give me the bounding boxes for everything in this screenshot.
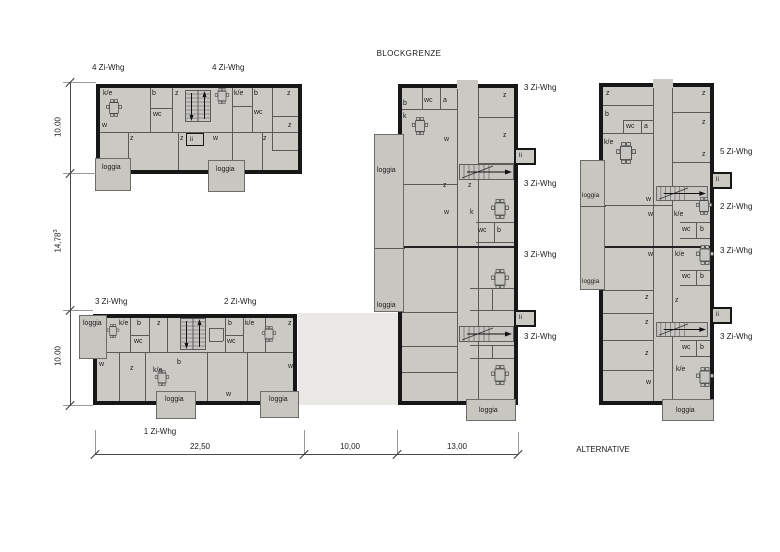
dining-table-icon: [260, 326, 278, 342]
room-label: b: [403, 100, 407, 107]
interior-wall: [402, 346, 457, 347]
apartment-type-label: 3 Zi-Whg: [524, 180, 556, 188]
loggia-label: loggia: [377, 167, 396, 174]
interior-wall: [672, 87, 673, 401]
room-label: w: [646, 196, 651, 203]
stairs-icon: [459, 326, 514, 342]
apartment-type-label: 3 Zi-Whg: [95, 298, 127, 306]
interior-wall: [402, 372, 457, 373]
loggia-label: loggia: [165, 396, 184, 403]
interior-wall: [178, 132, 179, 170]
dining-table-icon: [491, 365, 509, 385]
room-label: z: [288, 122, 292, 129]
interior-wall: [494, 222, 495, 242]
apartment-type-label: 2 Zi-Whg: [720, 203, 752, 211]
interior-wall: [680, 285, 710, 286]
room-label: z: [503, 92, 507, 99]
interior-wall: [402, 109, 457, 110]
interior-wall: [623, 120, 653, 121]
room-label: z: [130, 135, 134, 142]
party-wall: [402, 246, 514, 248]
room-label: z: [468, 182, 472, 189]
room-label: k/e: [674, 211, 683, 218]
room-label: z: [443, 182, 447, 189]
block-boundary-label: BLOCKGRENZE: [366, 50, 452, 58]
room-label: w: [288, 363, 293, 370]
room-label: wc: [682, 226, 691, 233]
room-label: k/e: [675, 251, 684, 258]
interior-wall: [603, 340, 653, 341]
interior-wall: [680, 356, 710, 357]
interior-wall: [696, 270, 697, 285]
dining-table-icon: [616, 142, 636, 164]
interior-wall: [492, 345, 493, 358]
loggia: loggia: [79, 315, 107, 359]
room-label: w: [648, 251, 653, 258]
apartment-type-label: 5 Zi-Whg: [720, 148, 752, 156]
dining-table-icon: [696, 245, 714, 265]
interior-wall: [422, 88, 423, 109]
interior-wall: [150, 88, 151, 132]
loggia: loggia: [260, 391, 299, 418]
dimension-label: 13,00: [432, 443, 482, 451]
room-label: wc: [424, 97, 433, 104]
interior-wall: [97, 352, 293, 353]
room-label: k/e: [103, 90, 112, 97]
dimension-label: 22,50: [175, 443, 225, 451]
interior-wall: [603, 290, 653, 291]
room-label: z: [175, 90, 179, 97]
loggia-label: loggia: [216, 166, 235, 173]
loggia-label: loggia: [102, 164, 121, 171]
room-label: b: [152, 90, 156, 97]
apartment-type-label: 4 Zi-Whg: [212, 64, 244, 72]
interior-wall: [119, 352, 120, 401]
interior-wall: [150, 108, 172, 109]
interior-wall: [440, 88, 441, 109]
room-label: z: [702, 119, 706, 126]
room-label: wc: [682, 344, 691, 351]
interior-wall: [476, 242, 514, 243]
dining-table-icon: [106, 98, 122, 118]
loggia-label: loggia: [269, 396, 288, 403]
room-label: k/e: [119, 320, 128, 327]
extension-line: [95, 430, 96, 454]
room-label: a: [443, 97, 447, 104]
wall-opening: [457, 80, 478, 89]
dimension-line: [70, 82, 71, 405]
interior-wall: [672, 112, 710, 113]
room-label: w: [444, 136, 449, 143]
room-label: z: [702, 90, 706, 97]
stairs-icon: [185, 90, 211, 122]
apartment-type-label: 3 Zi-Whg: [720, 333, 752, 341]
room-label: w: [102, 122, 107, 129]
room-label: z: [180, 135, 184, 142]
interior-wall: [247, 352, 248, 401]
dimension-label: 10,00: [325, 443, 375, 451]
dining-table-icon: [695, 197, 713, 215]
room-label: z: [263, 135, 267, 142]
loggia-label: loggia: [582, 279, 599, 286]
interior-wall: [243, 318, 244, 352]
party-wall: [603, 246, 710, 248]
interior-wall: [252, 88, 253, 132]
interior-wall: [470, 358, 514, 359]
room-label: k: [470, 209, 474, 216]
interior-wall: [272, 116, 298, 117]
room-label: z: [675, 297, 679, 304]
interior-wall: [603, 370, 653, 371]
extension-line: [397, 430, 398, 454]
apartment-type-label: 1 Zi-Whg: [130, 428, 190, 436]
interior-wall: [492, 288, 493, 310]
elevator-shaft: li: [711, 307, 732, 324]
room-label: z: [702, 151, 706, 158]
stairs-icon: [656, 322, 708, 337]
room-label: b: [254, 90, 258, 97]
building-middle-block: b wc a k z z w z z w k wc b: [398, 84, 518, 405]
room-label: b: [137, 320, 141, 327]
interior-wall: [272, 88, 273, 150]
loggia: loggia: [95, 158, 131, 191]
room-label: z: [130, 365, 134, 372]
loggia-divider: [375, 248, 405, 249]
apartment-type-label: 2 Zi-Whg: [224, 298, 256, 306]
building-alternative-block: z b wc a k/e z z z w w k/e wc b w k/e wc…: [599, 83, 714, 405]
interior-wall: [457, 88, 458, 401]
loggia: loggia: [466, 399, 516, 421]
room-label: b: [497, 227, 501, 234]
interior-wall: [232, 88, 233, 132]
stairs-icon: [180, 318, 206, 350]
loggia-label: loggia: [479, 407, 498, 414]
room-label: k/e: [604, 139, 613, 146]
interior-wall: [680, 270, 710, 271]
loggia-label: loggia: [83, 320, 102, 327]
room-label: z: [645, 294, 649, 301]
interior-wall: [223, 328, 224, 341]
dimension-label: 14,783: [54, 226, 64, 256]
elevator-shaft: li: [514, 310, 536, 327]
loggia-divider: [581, 206, 606, 207]
apartment-type-label: 4 Zi-Whg: [92, 64, 124, 72]
dining-table-icon: [695, 367, 715, 387]
courtyard-passage: [298, 313, 398, 405]
dining-table-icon: [491, 199, 509, 219]
elevator-shaft: li: [711, 172, 732, 189]
interior-wall: [149, 318, 150, 352]
room-label: wc: [254, 109, 263, 116]
loggia-label: loggia: [676, 407, 695, 414]
interior-wall: [225, 335, 243, 336]
apartment-type-label: 3 Zi-Whg: [524, 251, 556, 259]
alternative-label: ALTERNATIVE: [562, 446, 644, 454]
loggia: loggia loggia: [580, 160, 605, 290]
room-label: wc: [478, 227, 487, 234]
extension-line: [304, 430, 305, 454]
room-label: w: [99, 361, 104, 368]
dimension-label: 10.00: [54, 341, 64, 371]
room-label: wc: [626, 123, 635, 130]
interior-wall: [672, 162, 710, 163]
room-label: k/e: [153, 367, 162, 374]
interior-wall: [167, 318, 168, 352]
dining-table-icon: [491, 269, 509, 289]
room-label: z: [503, 132, 507, 139]
elevator-shaft: li: [514, 148, 536, 165]
room-label: b: [700, 226, 704, 233]
extension-line: [518, 432, 519, 454]
interior-wall: [696, 340, 697, 356]
room-label: z: [606, 90, 610, 97]
room-label: z: [645, 319, 649, 326]
room-label: k: [403, 113, 407, 120]
room-label: w: [444, 209, 449, 216]
room-label: wc: [153, 111, 162, 118]
room-label: b: [177, 359, 181, 366]
stairs-icon: [459, 164, 514, 180]
apartment-type-label: 3 Zi-Whg: [720, 247, 752, 255]
interior-wall: [172, 88, 173, 132]
interior-wall: [680, 340, 710, 341]
interior-wall: [145, 352, 146, 401]
dimension-line: [95, 454, 518, 455]
room-label: z: [157, 320, 161, 327]
interior-wall: [696, 222, 697, 238]
room-label: k/e: [245, 320, 254, 327]
interior-wall: [623, 120, 624, 133]
interior-wall: [603, 313, 653, 314]
interior-wall: [603, 105, 653, 106]
interior-wall: [272, 150, 298, 151]
interior-wall: [476, 222, 514, 223]
interior-wall: [232, 106, 252, 107]
interior-wall: [603, 133, 653, 134]
loggia-label: loggia: [582, 193, 599, 200]
room-label: b: [700, 344, 704, 351]
interior-wall: [641, 120, 642, 133]
room-label: wc: [134, 338, 143, 345]
room-label: z: [645, 350, 649, 357]
floor-plan-canvas: 4 Zi-Whg 4 Zi-Whg li k/e b z wc w z z w …: [0, 0, 780, 552]
room-label: w: [646, 379, 651, 386]
room-label: a: [644, 123, 648, 130]
loggia: loggia: [156, 391, 196, 419]
room-label: z: [288, 320, 292, 327]
dining-table-icon: [411, 117, 429, 135]
interior-wall: [402, 184, 457, 185]
room-label: wc: [227, 338, 236, 345]
dining-table-icon: [212, 88, 232, 104]
interior-wall: [209, 328, 223, 329]
room-label: k/e: [676, 366, 685, 373]
elevator-shaft: li: [186, 133, 204, 146]
interior-wall: [653, 87, 654, 401]
loggia: loggia: [208, 160, 245, 192]
interior-wall: [603, 205, 672, 206]
loggia: loggia: [662, 399, 714, 421]
wall-opening: [653, 79, 673, 88]
dimension-label: 10.00: [54, 112, 64, 142]
room-label: k/e: [234, 90, 243, 97]
interior-wall: [402, 312, 457, 313]
interior-wall: [478, 117, 514, 118]
room-label: w: [213, 135, 218, 142]
room-label: b: [605, 111, 609, 118]
room-label: w: [226, 391, 231, 398]
room-label: b: [228, 320, 232, 327]
interior-wall: [680, 222, 710, 223]
room-label: z: [287, 90, 291, 97]
apartment-type-label: 3 Zi-Whg: [524, 84, 556, 92]
interior-wall: [478, 88, 479, 401]
room-label: wc: [682, 273, 691, 280]
interior-wall: [680, 238, 710, 239]
interior-wall: [209, 341, 223, 342]
interior-wall: [207, 352, 208, 401]
apartment-type-label: 3 Zi-Whg: [524, 333, 556, 341]
room-label: w: [648, 211, 653, 218]
interior-wall: [470, 310, 514, 311]
interior-wall: [130, 335, 149, 336]
interior-wall: [209, 328, 210, 341]
loggia: loggia loggia: [374, 134, 404, 312]
room-label: b: [700, 273, 704, 280]
loggia-label: loggia: [377, 302, 396, 309]
